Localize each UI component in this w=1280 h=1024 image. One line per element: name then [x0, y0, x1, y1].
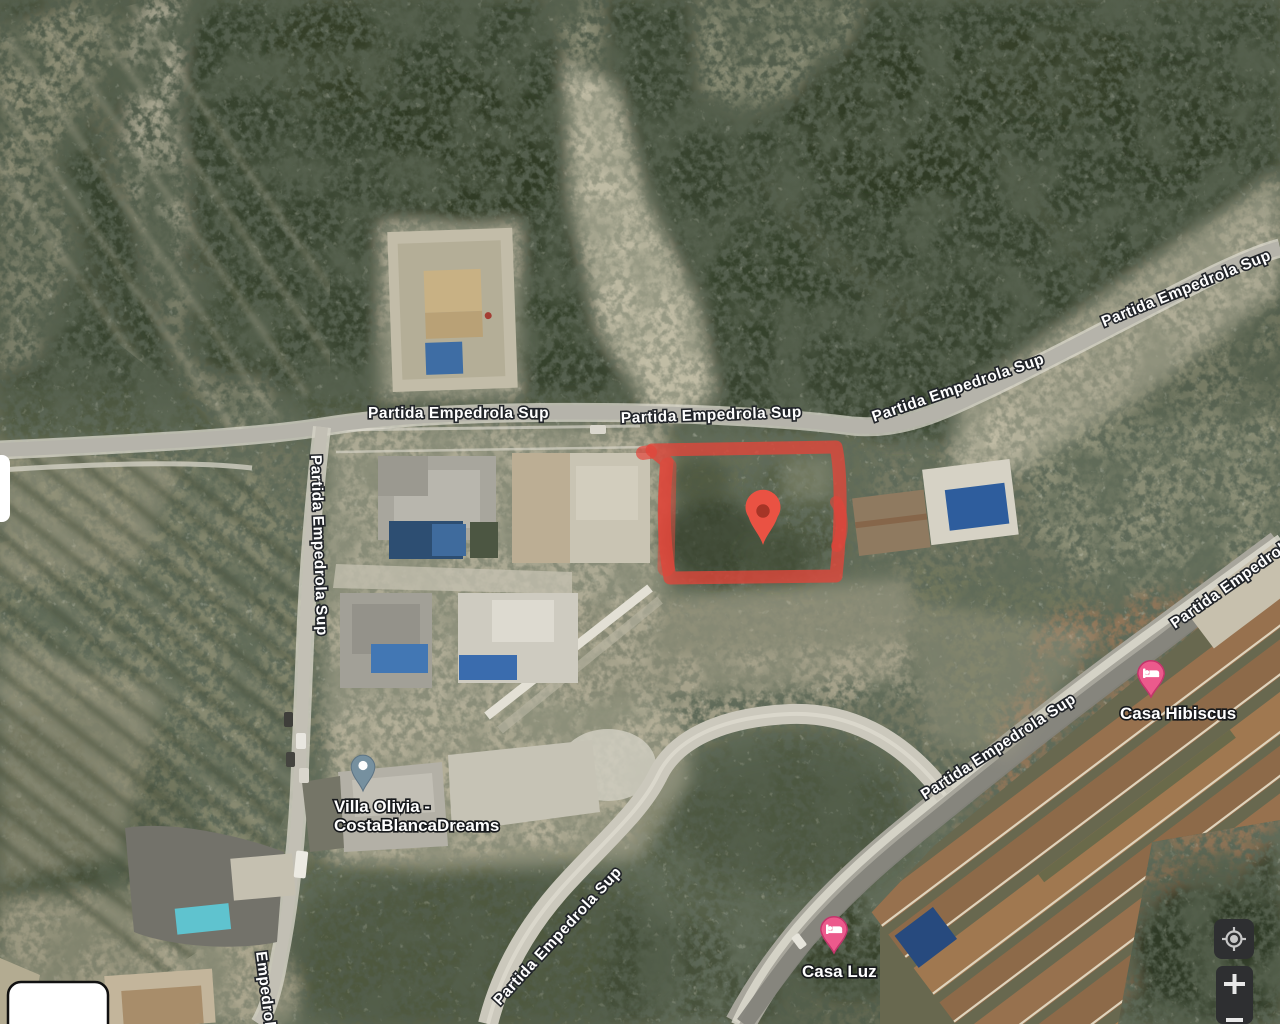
svg-text:Casa Hibiscus: Casa Hibiscus [1120, 704, 1236, 723]
svg-text:Partida Empedrola Sup: Partida Empedrola Sup [368, 405, 549, 422]
svg-text:CostaBlancaDreams: CostaBlancaDreams [334, 816, 499, 835]
svg-text:Villa Olivia -: Villa Olivia - [334, 797, 430, 816]
svg-text:Casa Luz: Casa Luz [802, 962, 877, 981]
